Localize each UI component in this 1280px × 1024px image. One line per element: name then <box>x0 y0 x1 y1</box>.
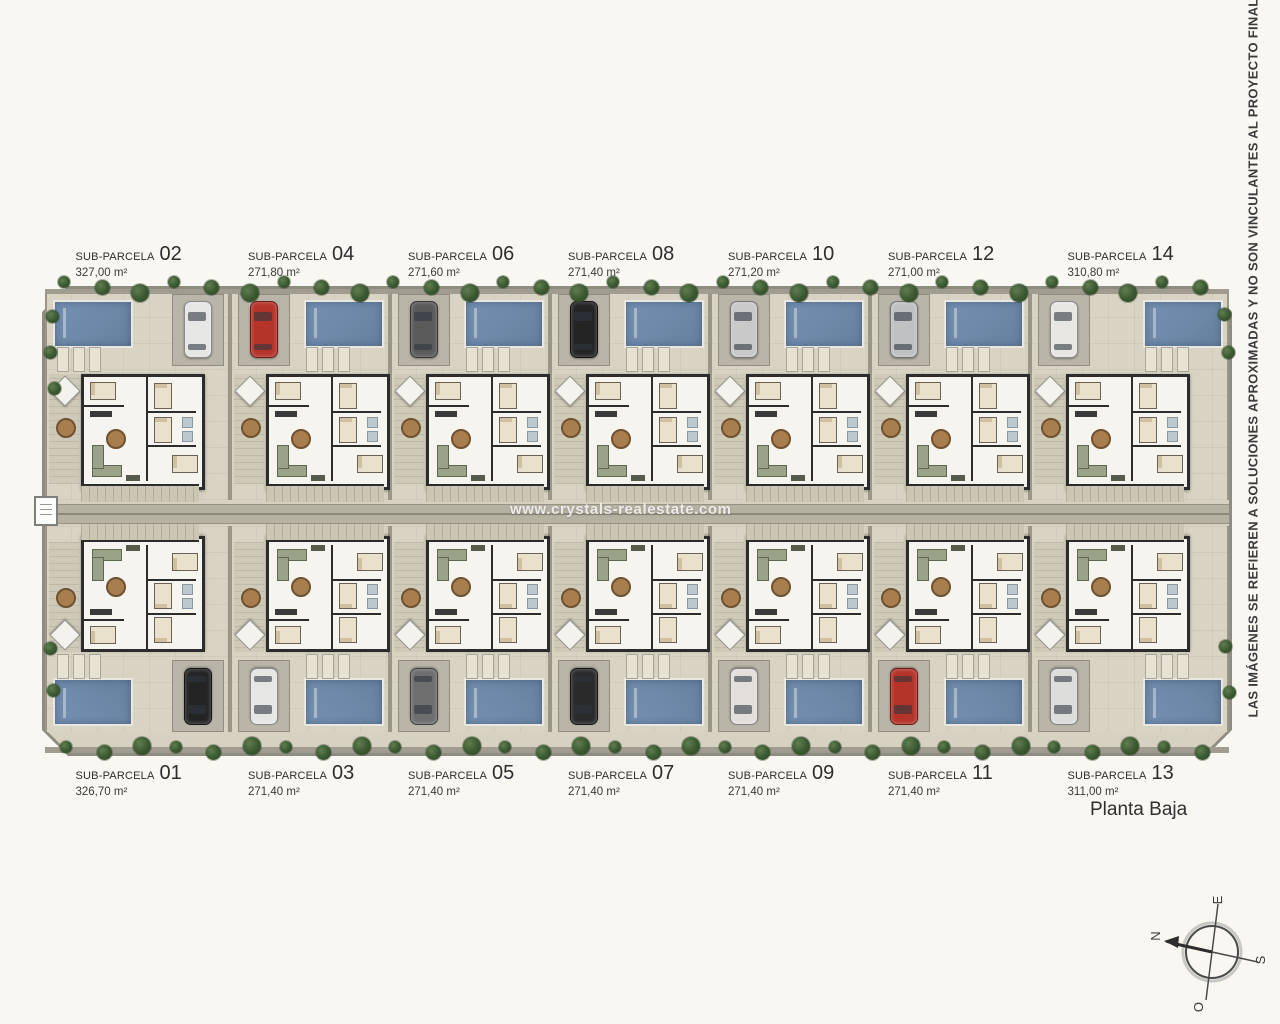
car <box>730 668 758 725</box>
kitchen-counter <box>915 411 937 417</box>
interior-wall <box>909 405 949 407</box>
interior-wall <box>971 579 1021 581</box>
bed-pillow <box>678 558 682 570</box>
sofa <box>437 557 449 581</box>
bathroom-fixture <box>367 431 378 442</box>
pool-lane-line <box>1153 688 1156 718</box>
parcel-label-prefix: SUB-PARCELA <box>728 770 807 782</box>
bed <box>819 583 837 609</box>
car-windshield <box>1054 312 1072 321</box>
bed-pillow <box>1158 558 1162 570</box>
outdoor-dining-table <box>56 588 76 608</box>
bed <box>1139 583 1157 609</box>
parcel-label: SUB-PARCELA12271,00 m² <box>888 243 994 279</box>
house-floorplan <box>586 374 710 490</box>
swimming-pool <box>464 300 544 348</box>
car <box>184 301 212 358</box>
parcel-label-line: SUB-PARCELA13 <box>1068 762 1174 785</box>
outdoor-dining-table <box>881 418 901 438</box>
bed-pillow <box>838 456 842 468</box>
tv-unit <box>1111 475 1125 481</box>
dining-table <box>771 429 791 449</box>
bed <box>275 382 301 400</box>
bed-pillow <box>500 384 512 388</box>
sun-lounger <box>786 347 798 372</box>
parcel-number: 12 <box>972 243 994 265</box>
parcel-plot <box>710 526 870 732</box>
bed <box>154 417 172 443</box>
bed <box>499 583 517 609</box>
swimming-pool <box>304 300 384 348</box>
interior-wall <box>146 377 148 481</box>
house-floorplan <box>266 536 390 652</box>
swimming-pool <box>464 678 544 726</box>
bed <box>339 383 357 409</box>
tv-unit <box>951 475 965 481</box>
bed-pillow <box>916 383 920 395</box>
parcel-area: 271,80 m² <box>248 267 354 279</box>
tree <box>47 684 60 697</box>
sun-lounger <box>658 347 670 372</box>
pool-lane-line <box>474 688 477 718</box>
bed-pillow <box>980 638 992 642</box>
car-rear-window <box>254 676 272 682</box>
parcel-area: 327,00 m² <box>76 267 182 279</box>
sun-lounger <box>962 654 974 679</box>
car <box>250 301 278 358</box>
tree <box>755 745 770 760</box>
bed <box>499 417 517 443</box>
parcel-label: SUB-PARCELA04271,80 m² <box>248 243 354 279</box>
pool-lane-line <box>314 688 317 718</box>
bed-pillow <box>340 638 352 642</box>
parcel-plot <box>550 294 710 500</box>
car-rear-window <box>1054 676 1072 682</box>
swimming-pool <box>624 300 704 348</box>
outdoor-dining-table <box>401 588 421 608</box>
pool-lane-line <box>63 308 66 338</box>
pool-lane-line <box>794 308 797 338</box>
bed-pillow <box>596 631 600 643</box>
interior-wall <box>971 445 1021 447</box>
sun-lounger <box>1161 347 1173 372</box>
parcel-plot <box>230 294 390 500</box>
tree <box>1012 737 1030 755</box>
kitchen-counter <box>435 411 457 417</box>
bed <box>979 383 997 409</box>
parcel-plot <box>1030 294 1229 500</box>
dining-table <box>291 577 311 597</box>
sun-lounger <box>338 347 350 372</box>
tree <box>865 745 880 760</box>
dining-table <box>611 429 631 449</box>
outdoor-dining-table <box>561 418 581 438</box>
rear-terrace <box>586 524 704 542</box>
outdoor-dining-table <box>241 418 261 438</box>
parcel-label-line: SUB-PARCELA07 <box>568 762 674 785</box>
parcel-number: 11 <box>972 762 993 784</box>
rear-terrace <box>906 524 1024 542</box>
interior-wall <box>589 619 629 621</box>
interior-wall <box>811 579 861 581</box>
parcel-label: SUB-PARCELA11271,40 m² <box>888 762 993 798</box>
sofa <box>757 445 769 469</box>
tv-unit <box>126 475 140 481</box>
dining-table <box>931 429 951 449</box>
tv-unit <box>1111 545 1125 551</box>
rear-terrace <box>81 484 199 502</box>
swimming-pool <box>304 678 384 726</box>
compass-west-label: O <box>1191 1002 1206 1012</box>
tree <box>280 741 292 753</box>
bed <box>837 553 863 571</box>
house-floorplan <box>906 374 1030 490</box>
car <box>184 668 212 725</box>
sun-lounger <box>946 347 958 372</box>
tree <box>717 276 729 288</box>
bed <box>517 455 543 473</box>
car-rear-window <box>894 344 912 350</box>
bed-pillow <box>1140 604 1152 608</box>
sofa <box>917 445 929 469</box>
bed-pillow <box>173 558 177 570</box>
sun-lounger <box>1177 654 1189 679</box>
tv-unit <box>311 475 325 481</box>
sun-lounger <box>322 347 334 372</box>
sofa <box>437 445 449 469</box>
bed <box>357 455 383 473</box>
car-windshield <box>188 312 206 321</box>
bed <box>1157 455 1183 473</box>
parcel-number: 08 <box>652 243 674 265</box>
compass-south-label: S <box>1253 955 1268 964</box>
pool-lane-line <box>794 688 797 718</box>
kitchen-counter <box>915 609 937 615</box>
interior-wall <box>429 405 469 407</box>
bed <box>595 382 621 400</box>
tree <box>426 745 441 760</box>
bed <box>595 626 621 644</box>
parcel-label: SUB-PARCELA06271,60 m² <box>408 243 514 279</box>
rear-terrace <box>1066 484 1184 502</box>
sofa <box>277 445 289 469</box>
sofa <box>277 557 289 581</box>
utility-box-line <box>40 514 52 515</box>
house-floorplan <box>1066 374 1190 490</box>
bed-pillow <box>1140 638 1152 642</box>
bed-pillow <box>436 631 440 643</box>
tree <box>644 280 659 295</box>
bathroom-fixture <box>527 584 538 595</box>
parcel-area: 326,70 m² <box>76 786 182 798</box>
dining-table <box>611 577 631 597</box>
parcel-label: SUB-PARCELA13311,00 m² <box>1068 762 1174 798</box>
parcel-plot <box>390 526 550 732</box>
interior-wall <box>491 445 541 447</box>
car-rear-window <box>734 344 752 350</box>
parcel-label-line: SUB-PARCELA11 <box>888 762 993 785</box>
dining-table <box>931 577 951 597</box>
parcel-label: SUB-PARCELA03271,40 m² <box>248 762 354 798</box>
interior-wall <box>491 545 493 649</box>
bed-pillow <box>91 631 95 643</box>
car-windshield <box>574 705 592 714</box>
sun-lounger <box>978 654 990 679</box>
rear-terrace <box>906 484 1024 502</box>
parcel-label: SUB-PARCELA01326,70 m² <box>76 762 182 798</box>
sofa <box>757 557 769 581</box>
kitchen-counter <box>90 411 112 417</box>
house-floorplan <box>906 536 1030 652</box>
sofa <box>917 557 929 581</box>
tree <box>1193 280 1208 295</box>
rear-terrace <box>266 484 384 502</box>
interior-wall <box>749 405 789 407</box>
bed-pillow <box>358 558 362 570</box>
parcel-area: 271,40 m² <box>728 786 834 798</box>
swimming-pool <box>784 678 864 726</box>
disclaimer-text: LAS IMÁGENES SE REFIEREN A SOLUCIONES AP… <box>1246 0 1261 718</box>
bed-pillow <box>1140 418 1152 422</box>
bed <box>499 383 517 409</box>
interior-wall <box>1069 619 1109 621</box>
interior-wall <box>491 411 541 413</box>
interior-wall <box>1069 405 1109 407</box>
interior-wall <box>331 579 381 581</box>
bed-pillow <box>660 418 672 422</box>
car-rear-window <box>254 344 272 350</box>
interior-wall <box>146 579 196 581</box>
outdoor-dining-table <box>721 588 741 608</box>
tree <box>206 745 221 760</box>
interior-wall <box>1131 377 1133 481</box>
parcel-plot <box>710 294 870 500</box>
bed <box>1139 383 1157 409</box>
interior-wall <box>84 405 124 407</box>
utility-box-line <box>40 504 52 505</box>
car-rear-window <box>734 676 752 682</box>
parcel-plot <box>870 526 1030 732</box>
interior-wall <box>84 619 124 621</box>
car-windshield <box>414 705 432 714</box>
parcel-area: 311,00 m² <box>1068 786 1174 798</box>
kitchen-counter <box>755 609 777 615</box>
bed-pillow <box>155 384 167 388</box>
parcel-label-prefix: SUB-PARCELA <box>568 251 647 263</box>
bed <box>819 617 837 643</box>
bed <box>499 617 517 643</box>
car-rear-window <box>1054 344 1072 350</box>
pool-lane-line <box>634 308 637 338</box>
parcel-label-prefix: SUB-PARCELA <box>248 770 327 782</box>
dining-table <box>1091 429 1111 449</box>
dining-table <box>291 429 311 449</box>
swimming-pool <box>944 300 1024 348</box>
house-floorplan <box>586 536 710 652</box>
tree <box>44 642 57 655</box>
pool-lane-line <box>474 308 477 338</box>
parcel-label: SUB-PARCELA08271,40 m² <box>568 243 674 279</box>
tree <box>790 284 808 302</box>
bathroom-fixture <box>182 598 193 609</box>
tree <box>46 310 59 323</box>
bathroom-fixture <box>527 417 538 428</box>
bed <box>435 382 461 400</box>
bed <box>997 455 1023 473</box>
bathroom-fixture <box>182 431 193 442</box>
compass-north-label: N <box>1150 931 1163 940</box>
sun-lounger <box>626 654 638 679</box>
bed-pillow <box>660 604 672 608</box>
kitchen-counter <box>90 609 112 615</box>
bed <box>659 583 677 609</box>
swimming-pool <box>624 678 704 726</box>
parcel-label: SUB-PARCELA10271,20 m² <box>728 243 834 279</box>
car-rear-window <box>188 676 206 682</box>
tree <box>97 745 112 760</box>
parcel-plot <box>870 294 1030 500</box>
bed-pillow <box>838 558 842 570</box>
pool-lane-line <box>1153 308 1156 338</box>
kitchen-counter <box>755 411 777 417</box>
tree <box>1085 745 1100 760</box>
outdoor-dining-table <box>721 418 741 438</box>
pool-lane-line <box>954 308 957 338</box>
car-rear-window <box>414 344 432 350</box>
outdoor-dining-table <box>56 418 76 438</box>
bed <box>915 626 941 644</box>
tv-unit <box>311 545 325 551</box>
tree <box>424 280 439 295</box>
interior-wall <box>331 377 333 481</box>
bathroom-fixture <box>1007 584 1018 595</box>
bathroom-fixture <box>367 417 378 428</box>
bathroom-fixture <box>687 598 698 609</box>
sun-lounger <box>89 654 101 679</box>
tree <box>902 737 920 755</box>
parcel-label-line: SUB-PARCELA01 <box>76 762 182 785</box>
parcel-label-prefix: SUB-PARCELA <box>408 251 487 263</box>
car <box>1050 301 1078 358</box>
house-floorplan <box>426 536 550 652</box>
parcel-area: 271,00 m² <box>888 267 994 279</box>
bed <box>90 626 116 644</box>
interior-wall <box>651 411 701 413</box>
kitchen-counter <box>435 609 457 615</box>
sofa <box>92 557 104 581</box>
parcel-label-line: SUB-PARCELA06 <box>408 243 514 266</box>
sun-lounger <box>962 347 974 372</box>
interior-wall <box>1131 613 1181 615</box>
sofa <box>1077 557 1089 581</box>
bed <box>1139 417 1157 443</box>
kitchen-counter <box>275 411 297 417</box>
bed <box>339 617 357 643</box>
interior-wall <box>589 405 629 407</box>
parcel-plot <box>550 526 710 732</box>
bed-pillow <box>980 604 992 608</box>
bed-pillow <box>916 631 920 643</box>
bed <box>90 382 116 400</box>
bathroom-fixture <box>687 417 698 428</box>
compass-rose: N E S O <box>1150 890 1274 1014</box>
sun-lounger <box>786 654 798 679</box>
parcel-label-prefix: SUB-PARCELA <box>888 251 967 263</box>
outdoor-dining-table <box>1041 418 1061 438</box>
tree <box>829 741 841 753</box>
tv-unit <box>126 545 140 551</box>
bed-pillow <box>1076 631 1080 643</box>
dining-table <box>451 429 471 449</box>
bed <box>755 626 781 644</box>
parcel-label-prefix: SUB-PARCELA <box>248 251 327 263</box>
bed-pillow <box>980 384 992 388</box>
car <box>410 301 438 358</box>
bathroom-fixture <box>182 584 193 595</box>
bathroom-fixture <box>527 431 538 442</box>
parcel-label-line: SUB-PARCELA02 <box>76 243 182 266</box>
tree <box>353 737 371 755</box>
tree <box>60 741 72 753</box>
tree <box>1218 308 1231 321</box>
utility-box-line <box>40 509 52 510</box>
tree <box>48 382 61 395</box>
swimming-pool <box>944 678 1024 726</box>
dining-table <box>106 577 126 597</box>
parcel-number: 10 <box>812 243 834 265</box>
sun-lounger <box>498 654 510 679</box>
parcel-number: 14 <box>1152 243 1174 265</box>
bed <box>339 417 357 443</box>
sun-lounger <box>73 347 85 372</box>
bed-pillow <box>820 604 832 608</box>
car-windshield <box>574 312 592 321</box>
bed-pillow <box>358 456 362 468</box>
car-windshield <box>894 312 912 321</box>
bed-pillow <box>500 418 512 422</box>
tree <box>95 280 110 295</box>
tree <box>1222 346 1235 359</box>
tree <box>241 284 259 302</box>
car <box>410 668 438 725</box>
parcel-label: SUB-PARCELA14310,80 m² <box>1068 243 1174 279</box>
car <box>890 668 918 725</box>
sun-lounger <box>1177 347 1189 372</box>
bed-pillow <box>998 558 1002 570</box>
parcel-area: 271,40 m² <box>408 786 514 798</box>
sun-lounger <box>1161 654 1173 679</box>
bed-pillow <box>820 418 832 422</box>
kitchen-counter <box>1075 411 1097 417</box>
outdoor-dining-table <box>401 418 421 438</box>
house-floorplan <box>1066 536 1190 652</box>
parcel-number: 09 <box>812 762 834 784</box>
bed <box>755 382 781 400</box>
sofa <box>92 445 104 469</box>
sun-lounger <box>642 347 654 372</box>
bathroom-fixture <box>367 598 378 609</box>
outdoor-dining-table <box>241 588 261 608</box>
interior-wall <box>1131 545 1133 649</box>
dining-table <box>451 577 471 597</box>
sun-lounger <box>306 654 318 679</box>
parcel-area: 271,40 m² <box>248 786 354 798</box>
sun-lounger <box>498 347 510 372</box>
sun-lounger <box>818 654 830 679</box>
parcel-label-prefix: SUB-PARCELA <box>728 251 807 263</box>
interior-wall <box>331 411 381 413</box>
tv-unit <box>791 545 805 551</box>
